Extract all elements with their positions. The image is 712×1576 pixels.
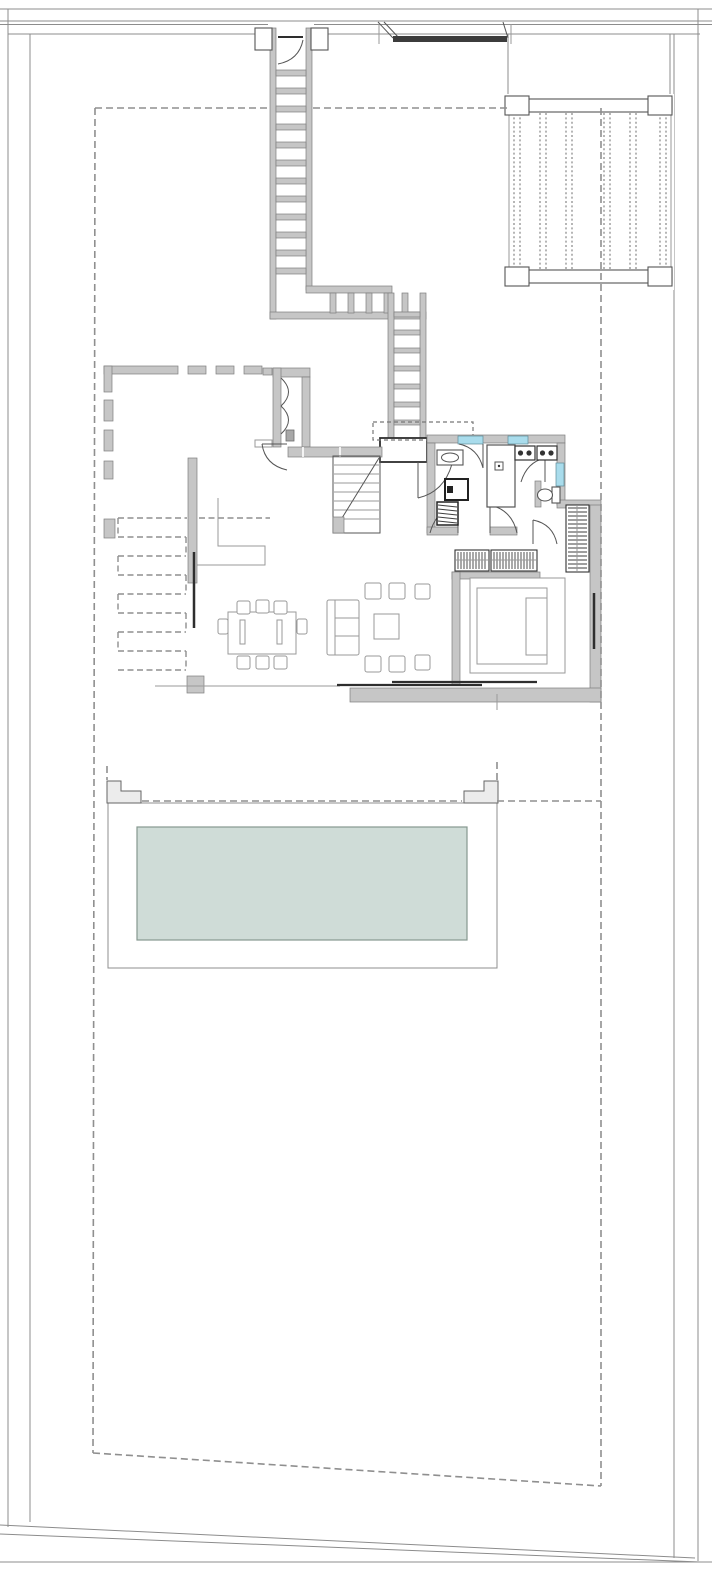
window-north-1 (458, 436, 483, 444)
chair (237, 601, 250, 614)
dining-table (228, 612, 296, 654)
carport-pergola (505, 94, 674, 290)
chair (256, 656, 269, 669)
living-room-set (327, 583, 430, 672)
pillow (526, 598, 547, 655)
cistern (552, 487, 560, 503)
gate-leaf (393, 36, 507, 42)
pouf (415, 655, 430, 670)
chair (237, 656, 250, 669)
wardrobes (455, 505, 589, 572)
wardrobe-3 (566, 505, 589, 572)
chair (297, 619, 307, 634)
deck-steps-right (464, 781, 498, 803)
dining-set (218, 600, 307, 669)
wardrobe-2 (491, 550, 537, 571)
internal-staircase (333, 456, 380, 533)
chair (256, 600, 269, 613)
pouf (415, 584, 430, 599)
coffee-table (374, 614, 399, 639)
boiler-unit (437, 502, 458, 525)
pool-terrace (107, 781, 498, 968)
sink (437, 450, 463, 465)
step-pier (187, 676, 204, 693)
pouf (389, 583, 405, 599)
wc (538, 487, 561, 503)
west-wall (188, 458, 197, 628)
entry-gate (378, 22, 511, 44)
chair (274, 601, 287, 614)
floor-plan-drawing (0, 0, 712, 1576)
deck-steps-left (107, 781, 141, 803)
bed (470, 578, 565, 673)
pouf (389, 656, 405, 672)
toilet-bowl (538, 489, 553, 501)
front-porch (380, 438, 427, 462)
terrace-step-edge (197, 498, 265, 565)
floor-plan-canvas (0, 0, 712, 1576)
pouf (365, 656, 381, 672)
window-north-2 (508, 436, 528, 444)
shower-room (487, 445, 515, 507)
chair (274, 656, 287, 669)
sofa (327, 600, 359, 655)
chair (218, 619, 228, 634)
window-east (556, 463, 564, 486)
house (155, 368, 601, 710)
vanity-cooktop-units (515, 446, 557, 460)
pouf (365, 583, 381, 599)
swimming-pool (137, 827, 467, 940)
wardrobe-1 (455, 550, 489, 571)
powder-room (437, 450, 468, 525)
